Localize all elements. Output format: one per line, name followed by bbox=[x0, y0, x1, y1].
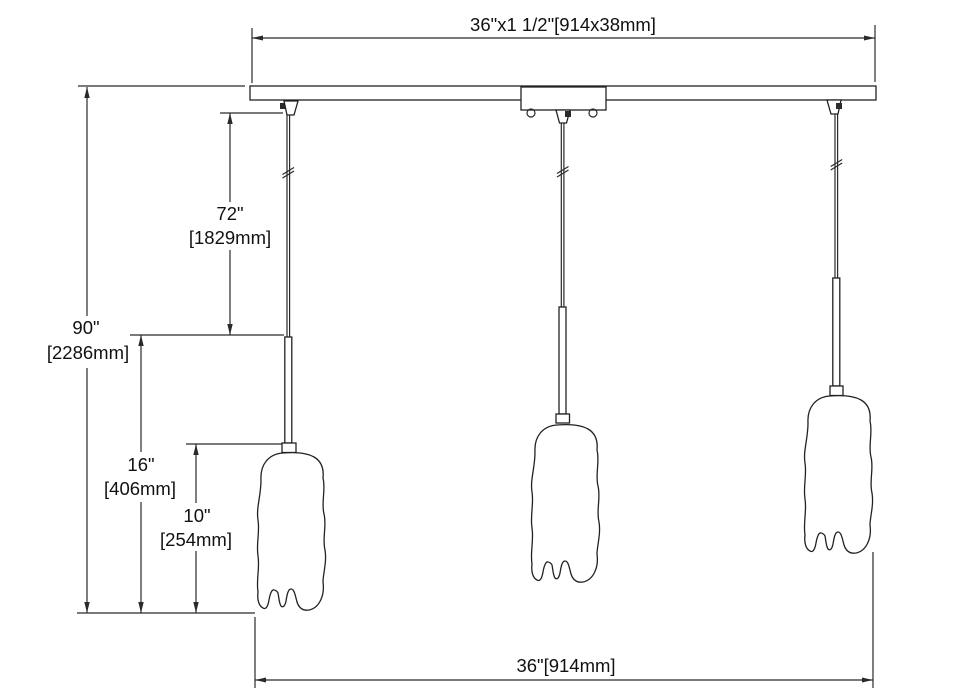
socket-holder bbox=[830, 386, 843, 396]
shade-height-inches-label: 10" bbox=[183, 505, 210, 526]
socket-holder bbox=[556, 414, 570, 423]
pendant-right bbox=[804, 100, 872, 553]
shade-height-mm-label: [254mm] bbox=[160, 529, 232, 550]
stem-tube bbox=[285, 337, 292, 443]
cord-grip-setscrew bbox=[836, 103, 842, 109]
cord-length-inches-label: 72" bbox=[216, 203, 243, 224]
overall-width-label: 36"[914mm] bbox=[516, 655, 615, 676]
glass-shade bbox=[531, 425, 599, 583]
cord-length-mm-label: [1829mm] bbox=[189, 227, 271, 248]
stem-tube bbox=[559, 307, 566, 414]
overall-height-inches-label: 90" bbox=[72, 317, 99, 338]
socket-holder bbox=[282, 443, 296, 453]
stem-shade-mm-label: [406mm] bbox=[104, 478, 176, 499]
canopy-size-label: 36"x1 1/2"[914x38mm] bbox=[470, 14, 656, 35]
stem-tube bbox=[833, 278, 840, 386]
dimension-lines bbox=[77, 25, 875, 688]
cord-break-symbol bbox=[557, 167, 569, 178]
overall-height-mm-label: [2286mm] bbox=[47, 342, 129, 363]
glass-shade bbox=[804, 396, 872, 554]
fixture-dimension-drawing: 36"x1 1/2"[914x38mm] 90" [2286mm] 72" [1… bbox=[0, 0, 980, 700]
center-mounting-box bbox=[521, 87, 606, 110]
technical-drawing-page: 36"x1 1/2"[914x38mm] 90" [2286mm] 72" [1… bbox=[0, 0, 980, 700]
pendant-left bbox=[257, 101, 325, 610]
cord-break-symbol bbox=[831, 160, 843, 171]
pendant-middle bbox=[531, 110, 599, 582]
stem-shade-inches-label: 16" bbox=[127, 454, 154, 475]
cord-grip-setscrew bbox=[565, 111, 571, 117]
glass-shade bbox=[257, 453, 325, 611]
cord-grip bbox=[284, 101, 298, 115]
cord-break-symbol bbox=[283, 168, 295, 179]
